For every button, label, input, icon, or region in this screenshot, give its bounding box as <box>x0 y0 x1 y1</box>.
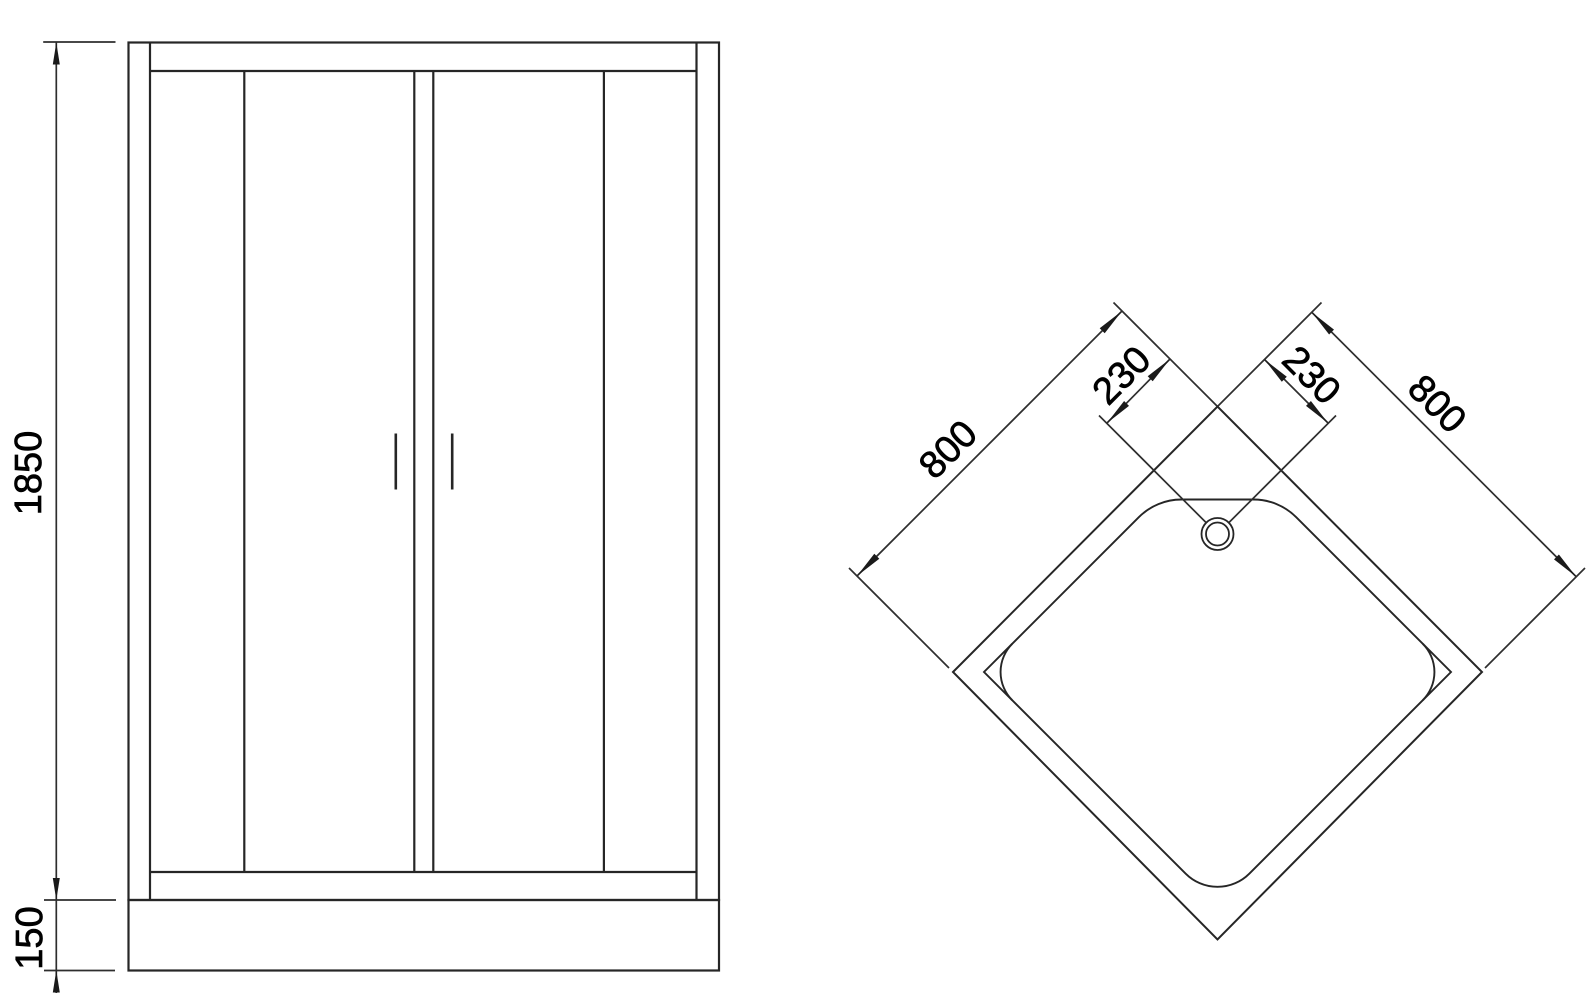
svg-text:1850: 1850 <box>8 431 50 516</box>
svg-text:800: 800 <box>1399 367 1474 442</box>
svg-text:230: 230 <box>1274 338 1349 413</box>
svg-text:150: 150 <box>9 906 51 969</box>
svg-text:230: 230 <box>1085 339 1160 414</box>
svg-text:800: 800 <box>911 413 986 488</box>
